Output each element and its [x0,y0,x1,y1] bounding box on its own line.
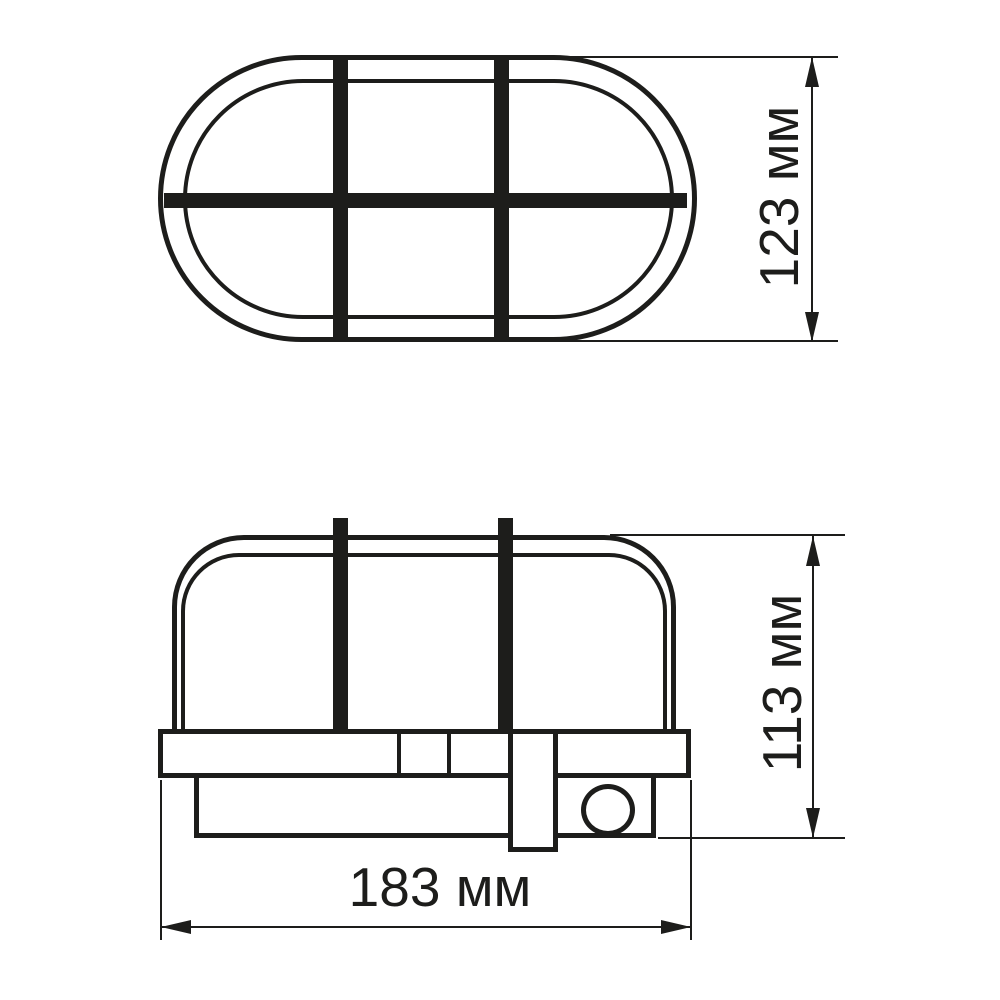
cage-clip [508,734,558,852]
technical-drawing-page: { "diagram": { "type": "technical-drawin… [0,0,1000,1000]
dimension-line [161,926,691,928]
extension-line-right [690,780,692,940]
arrowhead-right-icon [661,920,691,934]
extension-line-left [160,780,162,940]
dimension-overall-width: 183 мм [0,0,1000,1000]
arrowhead-left-icon [161,920,191,934]
base-flange [158,729,691,778]
dimension-label-183mm: 183 мм [340,859,540,915]
flange-divider-right [447,729,451,778]
flange-divider-left [397,729,401,778]
cable-entry-circle [581,784,635,836]
